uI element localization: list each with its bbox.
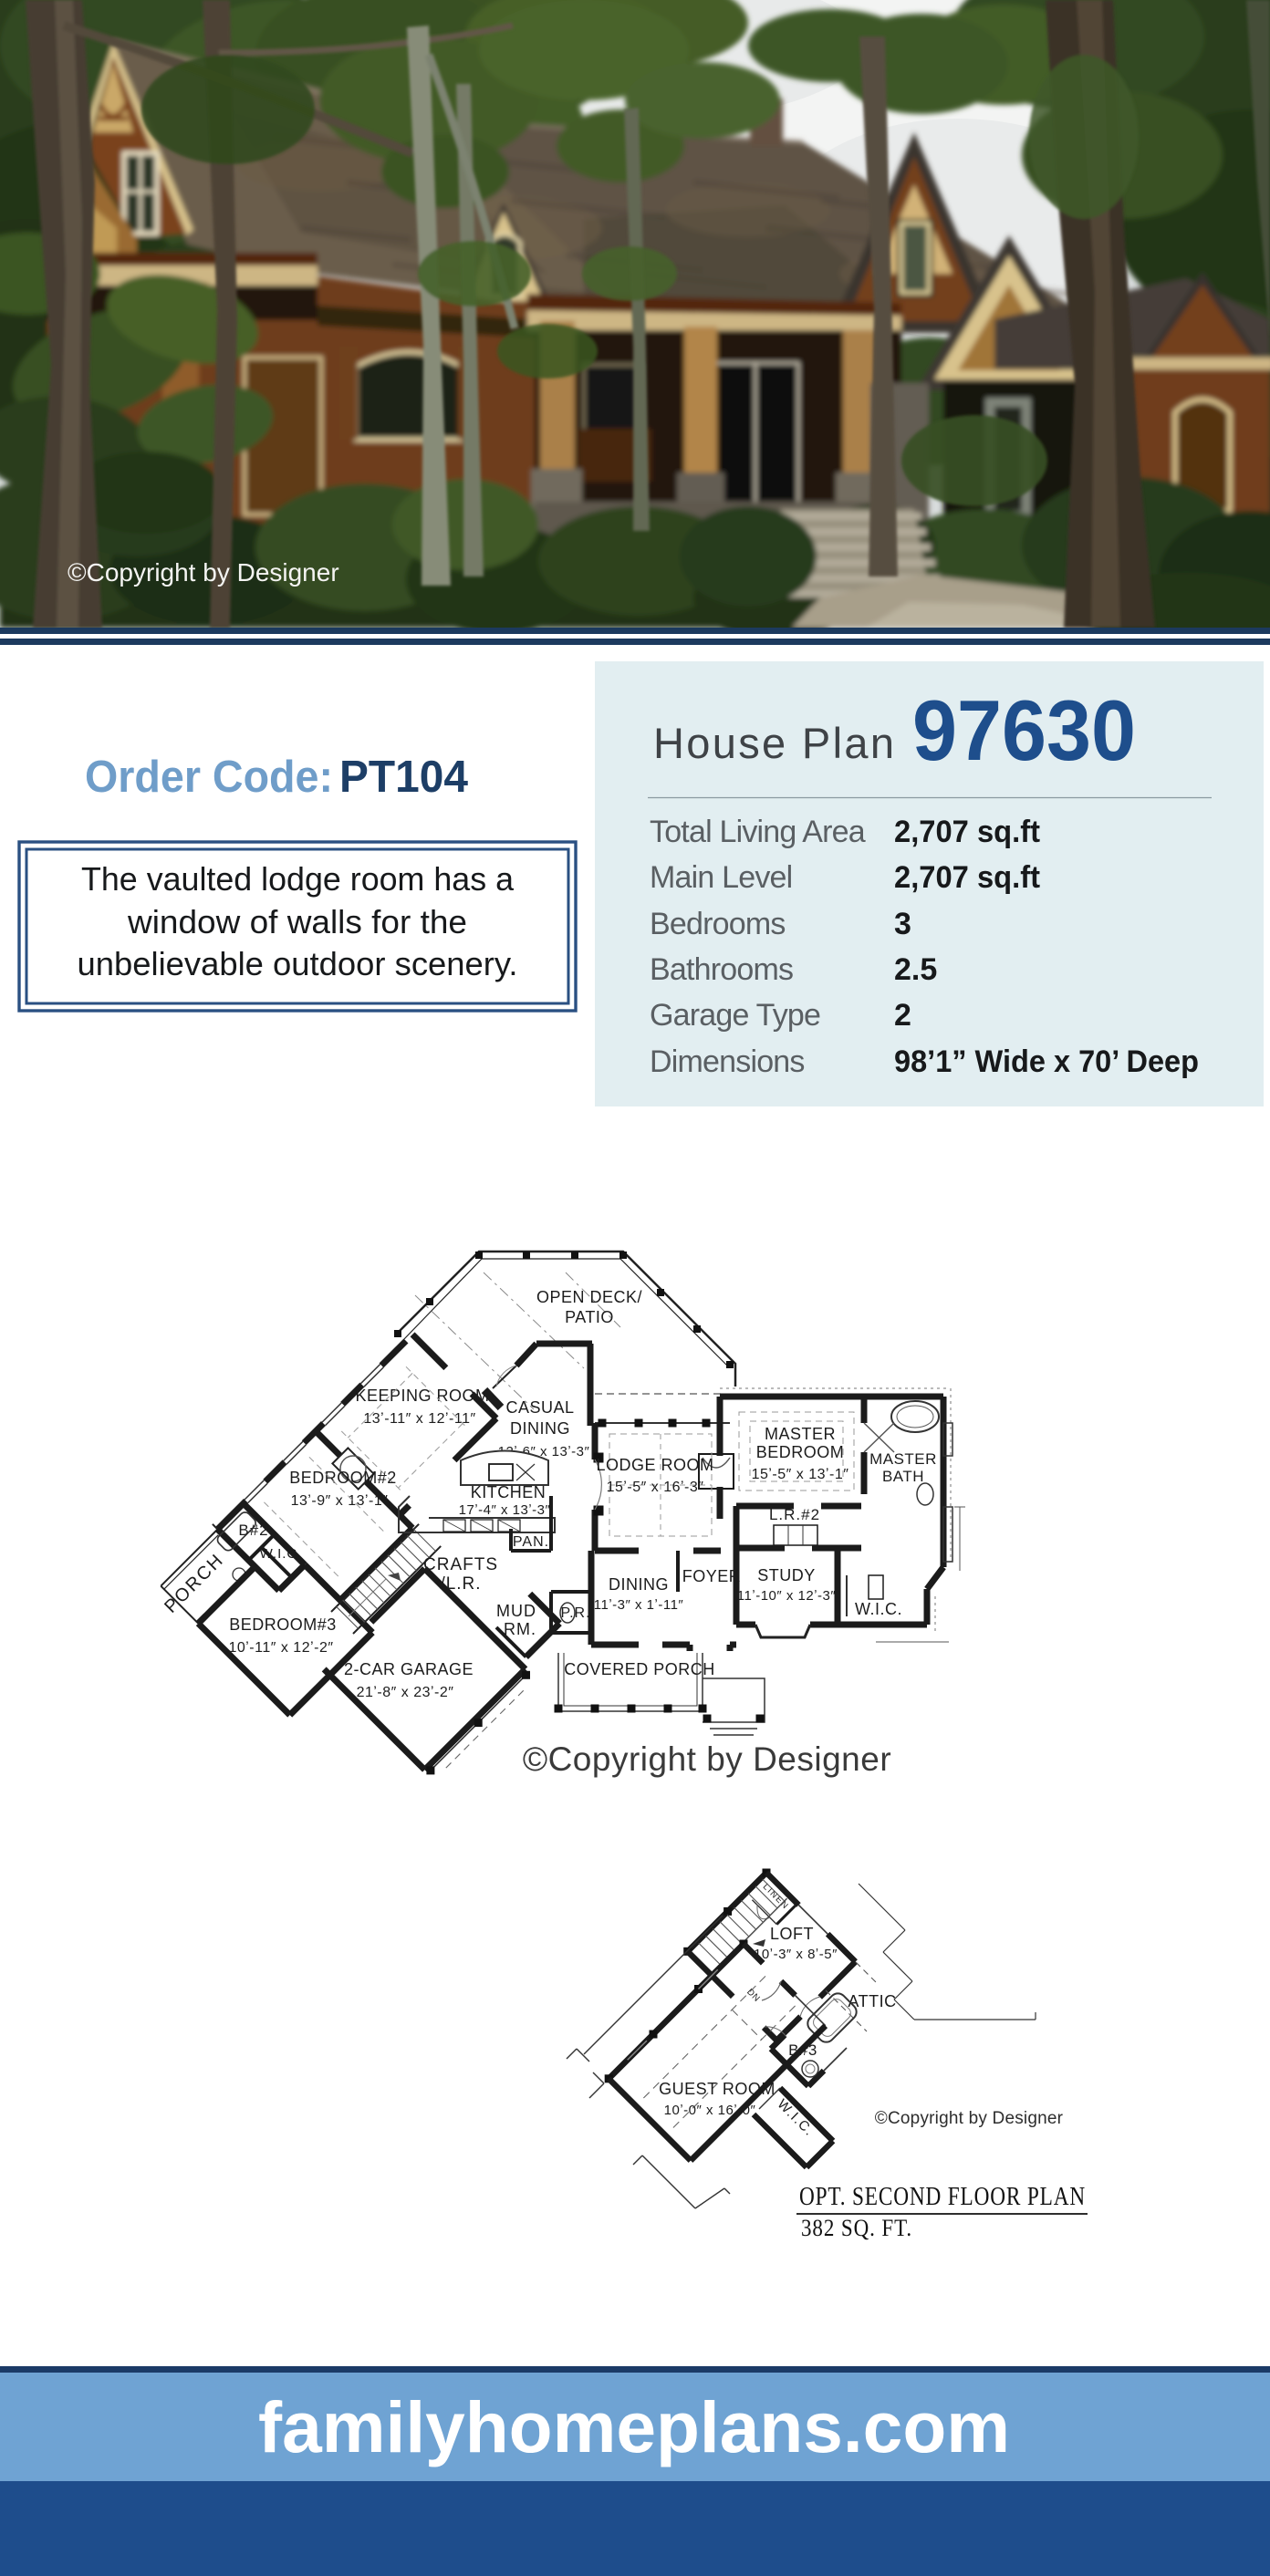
svg-text:BEDROOM#3: BEDROOM#3 (229, 1615, 337, 1634)
svg-text:DINING: DINING (510, 1419, 570, 1438)
svg-text:382 SQ. FT.: 382 SQ. FT. (801, 2215, 912, 2241)
svg-text:FOYER: FOYER (682, 1567, 742, 1585)
svg-text:11ʼ-3″ x 1ʼ-11″: 11ʼ-3″ x 1ʼ-11″ (594, 1597, 684, 1613)
svg-text:2: 2 (894, 998, 911, 1033)
svg-text:OPEN DECK/: OPEN DECK/ (536, 1288, 642, 1306)
svg-text:PATIO: PATIO (565, 1308, 614, 1326)
svg-text:11ʼ-10″ x 12ʼ-3″: 11ʼ-10″ x 12ʼ-3″ (737, 1588, 837, 1604)
svg-text:Garage Type: Garage Type (650, 998, 820, 1033)
svg-text:DINING: DINING (609, 1575, 669, 1594)
svg-text:2-CAR GARAGE: 2-CAR GARAGE (344, 1660, 474, 1678)
svg-text:B#2: B#2 (238, 1522, 268, 1539)
svg-text:W.I.C.: W.I.C. (855, 1600, 902, 1618)
svg-text:Bathrooms: Bathrooms (650, 952, 793, 987)
svg-text:BATH: BATH (882, 1468, 924, 1485)
svg-text:/L.R.: /L.R. (440, 1574, 481, 1594)
svg-text:L.R.#2: L.R.#2 (769, 1506, 820, 1523)
svg-text:13ʼ-9″ x 13ʼ-1″: 13ʼ-9″ x 13ʼ-1″ (291, 1493, 389, 1509)
svg-text:3: 3 (894, 907, 911, 941)
svg-text:Bedrooms: Bedrooms (650, 907, 786, 941)
svg-text:Main Level: Main Level (650, 860, 792, 895)
svg-text:15ʼ-5″ x 16ʼ-3″: 15ʼ-5″ x 16ʼ-3″ (607, 1480, 704, 1495)
svg-text:PT104: PT104 (339, 753, 468, 802)
svg-text:17ʼ-4″ x 13ʼ-3″: 17ʼ-4″ x 13ʼ-3″ (459, 1502, 551, 1518)
svg-text:10ʼ-11″ x 12ʼ-2″: 10ʼ-11″ x 12ʼ-2″ (228, 1640, 333, 1656)
svg-text:MASTER: MASTER (869, 1450, 937, 1468)
svg-text:Dimensions: Dimensions (650, 1044, 805, 1079)
svg-text:The vaulted lodge room has a: The vaulted lodge room has a (81, 860, 515, 898)
svg-text:KEEPING ROOM: KEEPING ROOM (355, 1387, 489, 1405)
svg-text:2,707 sq.ft: 2,707 sq.ft (894, 815, 1040, 849)
svg-text:LINEN: LINEN (761, 1882, 791, 1912)
svg-text:©Copyright by Designer: ©Copyright by Designer (875, 2109, 1064, 2128)
svg-text:CASUAL: CASUAL (505, 1398, 574, 1417)
svg-text:MUD: MUD (496, 1602, 536, 1620)
svg-text:2.5: 2.5 (894, 952, 937, 987)
svg-text:familyhomeplans.com: familyhomeplans.com (258, 2386, 1010, 2467)
svg-text:GUEST ROOM: GUEST ROOM (659, 2080, 776, 2098)
svg-text:COVERED PORCH: COVERED PORCH (564, 1660, 715, 1678)
svg-text:Order Code:: Order Code: (85, 753, 333, 802)
svg-text:LODGE ROOM: LODGE ROOM (596, 1456, 713, 1474)
svg-text:P.R.: P.R. (560, 1605, 590, 1621)
svg-text:10ʼ-0″ x 16ʼ-0″: 10ʼ-0″ x 16ʼ-0″ (664, 2103, 756, 2118)
svg-text:98’1” Wide x 70’ Deep: 98’1” Wide x 70’ Deep (894, 1044, 1199, 1079)
svg-text:©Copyright by Designer: ©Copyright by Designer (523, 1740, 891, 1778)
svg-text:15ʼ-5″ x 13ʼ-1″: 15ʼ-5″ x 13ʼ-1″ (752, 1467, 849, 1482)
svg-text:2,707 sq.ft: 2,707 sq.ft (894, 860, 1040, 895)
svg-text:LOFT: LOFT (770, 1925, 814, 1943)
svg-text:PAN.: PAN. (513, 1534, 549, 1550)
svg-text:OPT. SECOND FLOOR PLAN: OPT. SECOND FLOOR PLAN (799, 2183, 1086, 2211)
svg-text:House Plan: House Plan (653, 719, 894, 767)
svg-text:DN: DN (744, 1987, 762, 2004)
svg-text:MASTER: MASTER (765, 1425, 836, 1443)
svg-text:window of walls for the: window of walls for the (127, 903, 467, 940)
svg-text:BEDROOM#2: BEDROOM#2 (289, 1469, 397, 1487)
svg-text:©Copyright by Designer: ©Copyright by Designer (68, 558, 339, 587)
svg-text:21ʼ-8″ x 23ʼ-2″: 21ʼ-8″ x 23ʼ-2″ (357, 1685, 454, 1700)
svg-text:RM.: RM. (504, 1620, 536, 1638)
svg-text:BEDROOM: BEDROOM (756, 1443, 845, 1461)
svg-text:STUDY: STUDY (757, 1566, 816, 1584)
svg-text:13ʼ-11″ x 12ʼ-11″: 13ʼ-11″ x 12ʼ-11″ (363, 1411, 475, 1427)
svg-text:97630: 97630 (912, 682, 1136, 778)
svg-text:KITCHEN: KITCHEN (471, 1483, 547, 1501)
svg-text:CRAFTS: CRAFTS (423, 1555, 498, 1574)
svg-text:Total Living Area: Total Living Area (650, 815, 866, 849)
svg-text:10ʼ-3″ x 8ʼ-5″: 10ʼ-3″ x 8ʼ-5″ (754, 1947, 838, 1962)
svg-text:W.I.C.: W.I.C. (260, 1546, 303, 1562)
svg-text:unbelievable outdoor scenery.: unbelievable outdoor scenery. (78, 945, 518, 982)
